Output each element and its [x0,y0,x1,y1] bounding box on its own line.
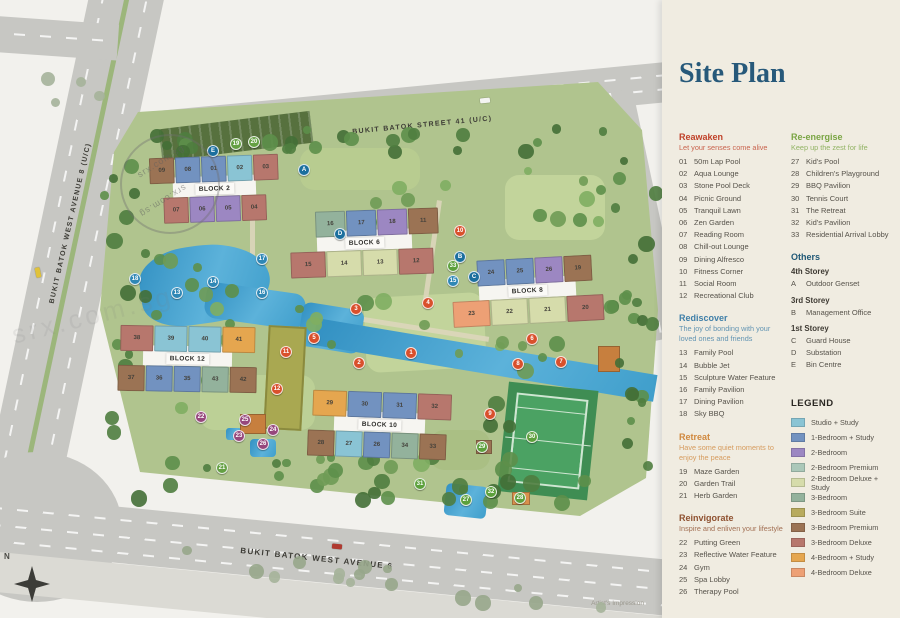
tree [611,203,621,213]
amenity-item: 30Tennis Court [791,193,897,205]
building-block-12: 383940413736354342BLOCK 12 [117,325,257,393]
unit-wing: 28 [307,430,335,457]
amenity-section-reenergise: Re-energiseKeep up the zest for life27Ki… [791,132,897,241]
map-marker-D: D [334,228,346,240]
amenity-number: 08 [679,241,691,253]
amenity-item: 28Children's Playground [791,168,897,180]
amenity-item: 09Dining Alfresco [679,254,789,266]
amenity-number: 17 [679,396,691,408]
section-heading: Rediscover [679,313,789,323]
unit-legend-swatch [791,433,805,442]
block-bottom-row: 3736354342 [117,365,256,393]
amenity-item: 24Gym [679,562,789,574]
unit-legend-label: 2-Bedroom [811,448,847,457]
unit-wing: 31 [382,392,417,419]
map-marker-18: 18 [129,273,141,285]
building-block-6: 1617181115141312BLOCK 6 [289,207,440,278]
amenity-label: Recreational Club [694,290,754,302]
amenity-label: Sky BBQ [694,408,724,420]
amenity-label: Fitness Corner [694,266,743,278]
others-letter: C [791,335,803,347]
tree [408,128,420,140]
amenity-label: Gym [694,562,710,574]
tree [615,358,624,367]
unit-legend-label: 1-Bedroom + Study [811,433,874,442]
amenity-label: Kid's Pavilion [806,217,850,229]
section-heading: Retreat [679,432,789,442]
unit-legend-swatch [791,493,805,502]
amenity-number: 21 [679,490,691,502]
map-marker-A: A [298,164,310,176]
block-bottom-row: 2827263433 [307,430,451,461]
amenity-number: 19 [679,466,691,478]
map-marker-10: 10 [454,225,466,237]
others-label: Outdoor Genset [806,278,859,290]
map-marker-7: 7 [555,356,567,368]
amenity-item: 29BBQ Pavilion [791,180,897,192]
amenity-number: 13 [679,347,691,359]
amenity-item: 19Maze Garden [679,466,789,478]
amenity-number: 10 [679,266,691,278]
amenity-item: 32Kid's Pavilion [791,217,897,229]
amenity-number: 18 [679,408,691,420]
amenity-item: 07Reading Room [679,229,789,241]
amenity-label: Social Room [694,278,737,290]
unit-legend-label: 3-Bedroom Deluxe [811,538,872,547]
block-label: BLOCK 8 [508,284,548,297]
map-marker-1: 1 [405,347,417,359]
tree [295,305,303,313]
building-block-10: 293031322827263433BLOCK 10 [307,390,452,461]
lawn [505,175,605,240]
amenity-number: 04 [679,193,691,205]
unit-wing: 14 [326,250,362,277]
tree [334,568,346,580]
tree [249,564,264,579]
block-top-row: 24252619 [476,254,602,287]
amenity-label: Family Pool [694,347,733,359]
amenity-label: Herb Garden [694,490,737,502]
tree [274,471,284,481]
amenity-item: 02Aqua Lounge [679,168,789,180]
map-marker-22: 22 [195,411,207,423]
tree [579,176,588,185]
amenity-label: Maze Garden [694,466,739,478]
amenity-section-retreat: RetreatHave some quiet moments to enjoy … [679,432,789,503]
amenity-section-reawaken: ReawakenLet your senses come alive0150m … [679,132,789,302]
compass-north-label: N [4,552,10,561]
amenity-label: BBQ Pavilion [806,180,850,192]
block-label: BLOCK 12 [166,353,210,365]
map-marker-9: 9 [484,408,496,420]
unit-wing: 32 [417,393,452,420]
tree [199,287,213,301]
building-block-8: 2425261923222120BLOCK 8 [450,254,604,328]
unit-legend-label: 4-Bedroom + Study [811,553,874,562]
map-marker-2: 2 [353,357,365,369]
unit-wing: 18 [377,209,408,236]
tree [203,464,211,472]
map-marker-4: 4 [422,297,434,309]
amenity-item: 31The Retreat [791,205,897,217]
map-marker-C: C [468,271,480,283]
map-marker-26: 26 [257,438,269,450]
section-subtitle: The joy of bonding with your loved ones … [679,324,789,344]
amenity-item: 16Family Pavilion [679,384,789,396]
tree [355,492,371,508]
tree [316,455,325,464]
map-marker-29: 29 [476,441,488,453]
unit-legend-heading: LEGEND [791,398,897,409]
unit-legend-label: 3-Bedroom [811,493,847,502]
map-marker-31: 31 [414,478,426,490]
tree [182,546,192,556]
others-item: AOutdoor Genset [791,278,897,290]
amenity-number: 02 [679,168,691,180]
section-heading: Re-energise [791,132,897,142]
map-marker-17: 17 [256,253,268,265]
amenity-label: Garden Trail [694,478,735,490]
unit-legend-row: 2-Bedroom Deluxe + Study [791,475,897,490]
unit-legend-swatch [791,463,805,472]
amenity-item: 22Putting Green [679,537,789,549]
tree [76,77,86,87]
unit-wing: 17 [346,210,377,237]
amenity-number: 32 [791,217,803,229]
amenity-item: 11Social Room [679,278,789,290]
tree [131,490,148,507]
tree [459,485,468,494]
amenity-label: Zen Garden [694,217,734,229]
others-label: Guard House [806,335,851,347]
amenity-item: 03Stone Pool Deck [679,180,789,192]
unit-legend-label: 3-Bedroom Suite [811,508,866,517]
tree [293,556,306,569]
tree [550,211,566,227]
unit-wing: 43 [201,366,228,392]
tree [262,134,278,150]
amenity-label: Kid's Pool [806,156,839,168]
unit-legend-swatch [791,568,805,577]
tree [51,98,60,107]
tree [632,298,641,307]
tree [475,595,490,610]
amenity-label: Reflective Water Feature [694,549,777,561]
amenity-label: Dining Alfresco [694,254,744,266]
amenity-number: 16 [679,384,691,396]
map-marker-8: 8 [512,358,524,370]
map-marker-30: 30 [526,431,538,443]
amenity-label: Picnic Ground [694,193,741,205]
tree [163,478,177,492]
tree [518,341,527,350]
others-label: Management Office [806,307,871,319]
amenity-number: 03 [679,180,691,192]
unit-legend-label: 3-Bedroom Premium [811,523,878,532]
others-letter: D [791,347,803,359]
map-marker-20: 20 [248,136,260,148]
amenity-label: Chill-out Lounge [694,241,749,253]
unit-legend-row: 4-Bedroom + Study [791,550,897,565]
unit-wing: 37 [117,365,144,391]
tree [455,590,471,606]
amenity-number: 33 [791,229,803,241]
recreational-club [263,325,306,431]
map-marker-16: 16 [256,287,268,299]
amenity-number: 31 [791,205,803,217]
unit-wing: 21 [528,296,566,324]
unit-legend-label: 4-Bedroom Deluxe [811,568,872,577]
unit-legend-label: 2-Bedroom Deluxe + Study [811,474,897,492]
tree [282,144,292,154]
amenity-item: 17Dining Pavilion [679,396,789,408]
amenity-label: Tennis Court [806,193,848,205]
map-marker-32: 32 [485,486,497,498]
amenity-section-reinvigorate: ReinvigorateInspire and enliven your lif… [679,513,789,598]
block-top-row: 29303132 [312,390,452,421]
others-letter: B [791,307,803,319]
amenity-item: 10Fitness Corner [679,266,789,278]
amenity-section-rediscover: RediscoverThe joy of bonding with your l… [679,313,789,420]
amenity-number: 12 [679,290,691,302]
amenity-item: 23Reflective Water Feature [679,549,789,561]
amenity-number: 25 [679,574,691,586]
tree [381,491,395,505]
tree [604,300,618,314]
amenity-label: Tranquil Lawn [694,205,741,217]
unit-legend-label: Studio + Study [811,418,859,427]
tree [453,146,462,155]
tree [502,452,517,467]
amenity-item: 08Chill-out Lounge [679,241,789,253]
section-subtitle: Keep up the zest for life [791,143,897,153]
tree [549,336,565,352]
tree [529,596,543,610]
amenity-label: Therapy Pool [694,586,739,598]
tree [105,411,119,425]
others-label: Bin Centre [806,359,841,371]
map-marker-3: 3 [350,303,362,315]
map-marker-24: 24 [267,424,279,436]
map-marker-11: 11 [280,346,292,358]
unit-legend-row: 1-Bedroom + Study [791,430,897,445]
amenity-label: Reading Room [694,229,744,241]
section-subtitle: Have some quiet moments to enjoy the pea… [679,443,789,463]
unit-wing: 25 [505,258,534,285]
tree [593,216,604,227]
unit-wing: 26 [534,256,563,283]
unit-legend-row: Studio + Study [791,415,897,430]
tree [620,157,628,165]
car [332,543,342,549]
amenity-number: 05 [679,205,691,217]
tree [272,459,281,468]
amenity-label: Family Pavilion [694,384,744,396]
unit-wing: 35 [173,366,200,392]
amenity-number: 06 [679,217,691,229]
map-marker-21: 21 [216,462,228,474]
tree [165,456,180,471]
unit-wing: 20 [566,294,604,322]
amenity-item: 20Garden Trail [679,478,789,490]
tree [327,340,336,349]
map-marker-14: 14 [207,276,219,288]
tree [141,249,150,258]
amenity-item: 33Residential Arrival Lobby [791,229,897,241]
others-letter: E [791,359,803,371]
unit-wing: 42 [229,367,256,393]
tree [538,353,547,362]
unit-legend-swatch [791,508,805,517]
amenity-number: 07 [679,229,691,241]
unit-wing: 41 [222,327,255,354]
tree [456,128,470,142]
amenity-number: 26 [679,586,691,598]
block-bottom-row: 15141312 [290,247,440,278]
tree [385,578,398,591]
amenity-number: 23 [679,549,691,561]
tree [552,124,562,134]
amenity-number: 14 [679,360,691,372]
amenity-number: 09 [679,254,691,266]
car [480,97,490,103]
unit-legend-swatch [791,538,805,547]
amenity-item: 05Tranquil Lawn [679,205,789,217]
section-heading: Reawaken [679,132,789,142]
map-marker-12: 12 [271,383,283,395]
unit-wing: 11 [408,207,439,234]
amenity-item: 25Spa Lobby [679,574,789,586]
tree [163,253,179,269]
tree [374,474,389,489]
others-heading: Others [791,252,897,262]
unit-wing: 29 [312,390,347,417]
unit-legend-row: 3-Bedroom Premium [791,520,897,535]
tree [613,172,626,185]
tree [386,134,399,147]
unit-wing: 36 [145,365,172,391]
legend-column-left: ReawakenLet your senses come alive0150m … [679,132,789,609]
unit-legend-row: 4-Bedroom Deluxe [791,565,897,580]
others-item: DSubstation [791,347,897,359]
amenity-number: 30 [791,193,803,205]
unit-wing: 34 [391,432,419,459]
tree [596,602,607,613]
amenity-item: 27Kid's Pool [791,156,897,168]
tree [518,144,534,160]
amenity-label: Aqua Lounge [694,168,739,180]
storey-label: 4th Storey [791,265,897,278]
tree [638,398,646,406]
tree [106,233,123,250]
tree [578,475,591,488]
map-marker-6: 6 [526,333,538,345]
amenity-number: 20 [679,478,691,490]
amenity-number: 28 [791,168,803,180]
tree [442,492,456,506]
tree [533,209,546,222]
amenity-label: Sculpture Water Feature [694,372,775,384]
unit-wing: 27 [335,430,363,457]
unit-legend-row: 2-Bedroom [791,445,897,460]
storey-label: 1st Storey [791,322,897,335]
legend-panel: Site Plan ReawakenLet your senses come a… [662,0,900,618]
unit-legend-swatch [791,448,805,457]
map-marker-5: 5 [308,332,320,344]
tree [496,336,509,349]
tree [107,425,122,440]
tree [579,191,595,207]
amenity-number: 29 [791,180,803,192]
others-item: EBin Centre [791,359,897,371]
section-subtitle: Let your senses come alive [679,143,789,153]
amenity-item: 06Zen Garden [679,217,789,229]
amenity-number: 22 [679,537,691,549]
map-marker-23: 23 [233,430,245,442]
amenity-number: 11 [679,278,691,290]
watermark-circle: srx.com.sg srx.com.sg [120,134,220,234]
unit-wing: 22 [490,298,528,326]
amenity-label: Bubble Jet [694,360,729,372]
amenity-item: 18Sky BBQ [679,408,789,420]
amenity-label: Dining Pavilion [694,396,744,408]
block-label: BLOCK 10 [358,419,402,432]
unit-wing: 40 [188,326,221,353]
section-heading: Reinvigorate [679,513,789,523]
amenity-item: 14Bubble Jet [679,360,789,372]
unit-legend-row: 3-Bedroom [791,490,897,505]
tree [282,459,290,467]
tree [346,578,354,586]
unit-wing: 12 [398,248,434,275]
tree [643,461,653,471]
amenity-item: 21Herb Garden [679,490,789,502]
unit-wing: 33 [419,433,447,460]
legend-column-right: Re-energiseKeep up the zest for life27Ki… [791,132,897,580]
unit-wing: 39 [154,325,187,352]
tree [638,236,654,252]
tree [41,72,55,86]
map-marker-15: 15 [447,275,459,287]
amenity-number: 01 [679,156,691,168]
block-label: BLOCK 6 [345,237,385,249]
unit-wing: 05 [215,195,241,222]
amenity-item: 15Sculpture Water Feature [679,372,789,384]
amenity-label: Putting Green [694,537,740,549]
unit-wing: 24 [476,259,505,286]
amenity-label: 50m Lap Pool [694,156,740,168]
map-marker-33: 33 [447,260,459,272]
amenity-label: Children's Playground [806,168,879,180]
amenity-item: 0150m Lap Pool [679,156,789,168]
map-marker-25: 25 [239,414,251,426]
unit-wing: 38 [120,325,153,352]
others-item: CGuard House [791,335,897,347]
tree [175,402,187,414]
unit-legend-swatch [791,553,805,562]
tree [554,495,570,511]
unit-legend-label: 2-Bedroom Premium [811,463,878,472]
tree [269,571,281,583]
unit-wing: 15 [290,251,326,278]
amenity-label: Residential Arrival Lobby [806,229,889,241]
tree [303,126,311,134]
unit-wing: 13 [362,249,398,276]
tree [649,186,662,200]
site-plan-map: BUKIT BATOK WEST AVENUE 8 (U/C) BUKIT BA… [0,0,662,618]
unit-wing: 03 [253,154,279,181]
amenity-label: Spa Lobby [694,574,730,586]
